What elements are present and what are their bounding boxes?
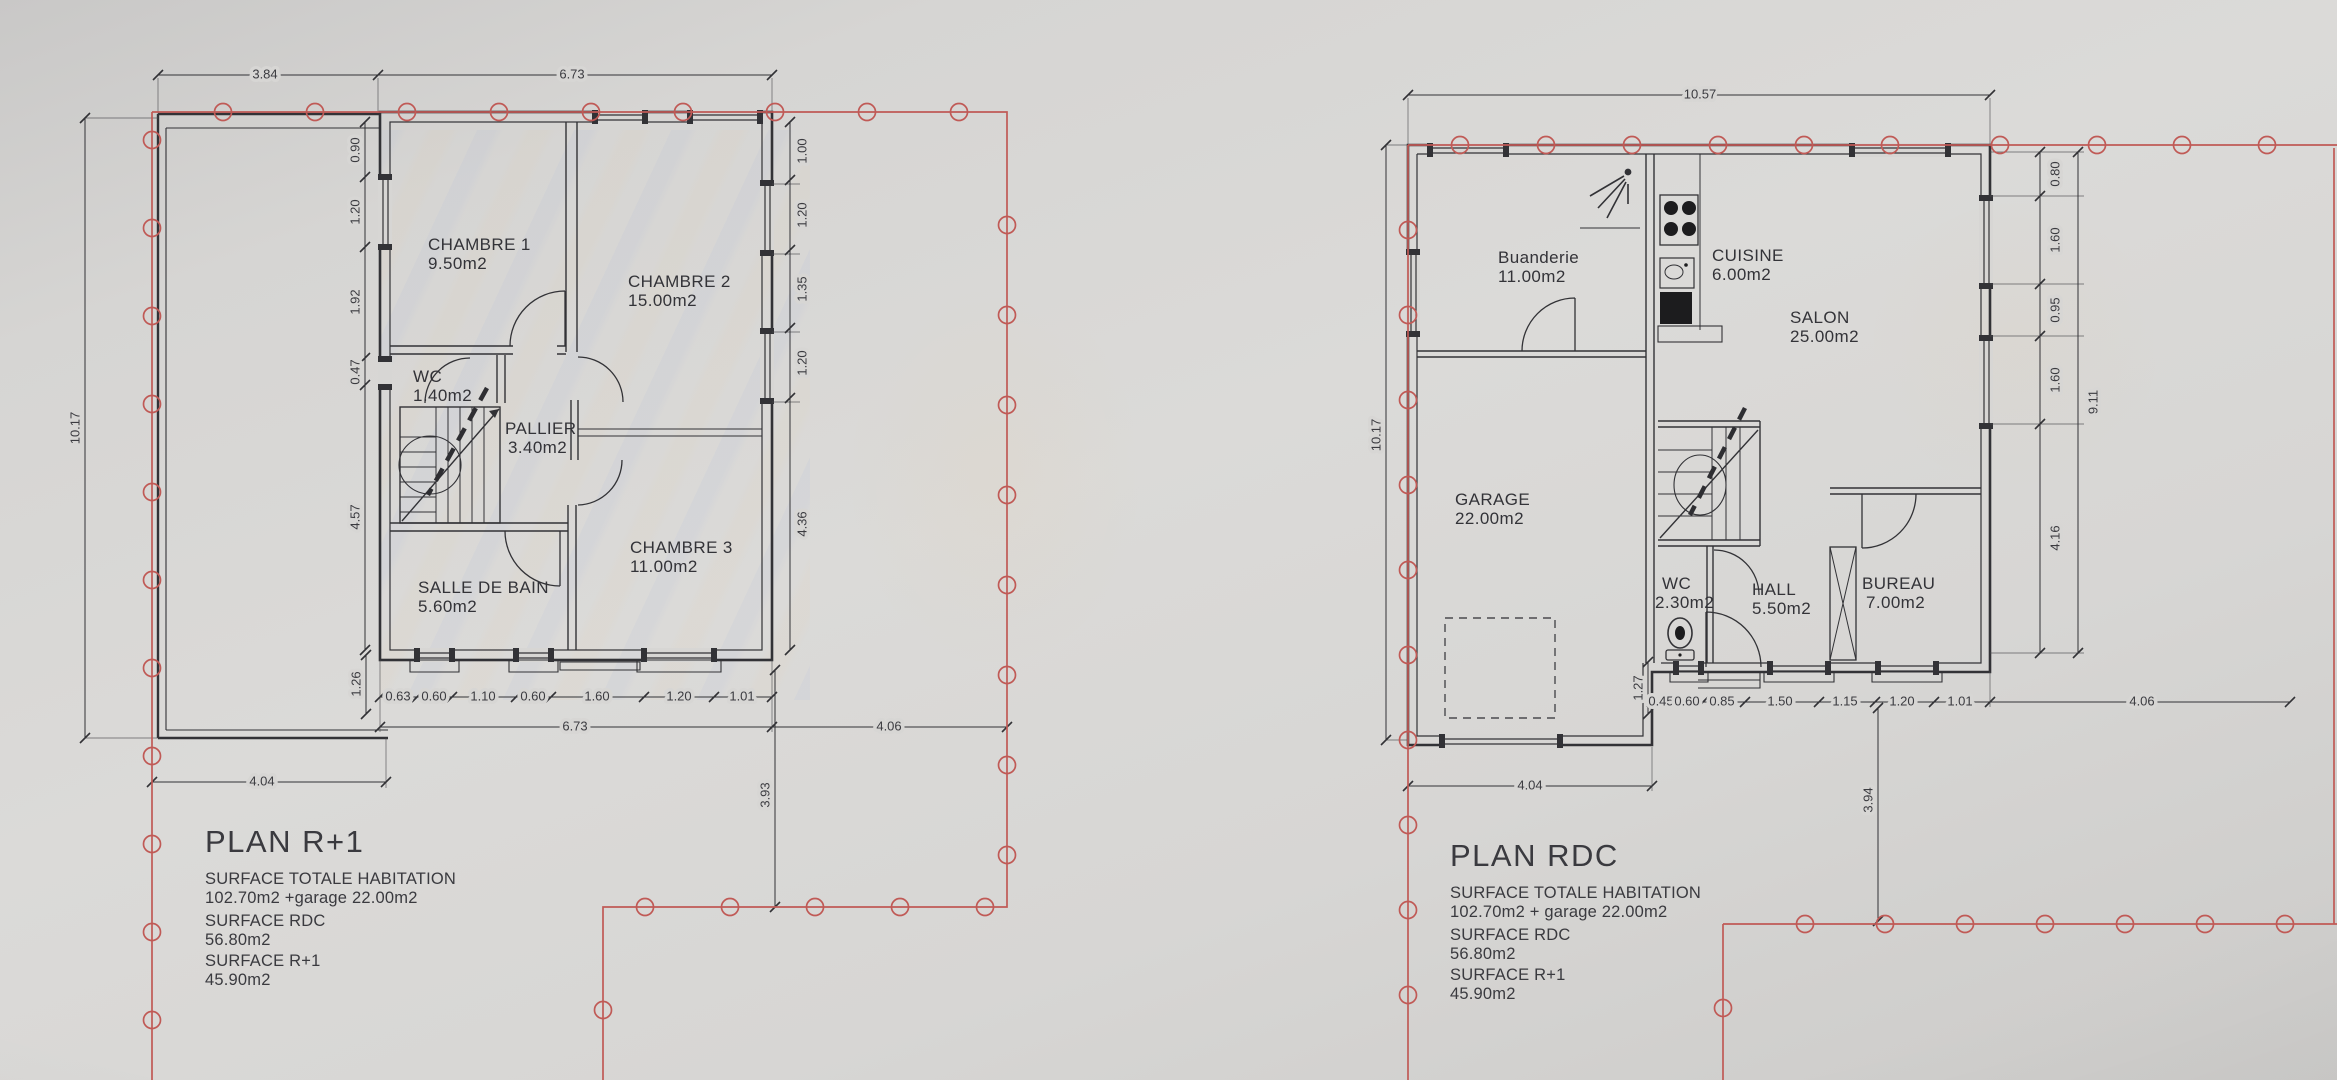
summary-line: SURFACE RDC [205, 912, 325, 930]
counter [1658, 326, 1722, 342]
dim-label: 0.45 [1648, 693, 1673, 708]
dim-label: 4.06 [876, 718, 901, 733]
room-area: 5.60m2 [418, 597, 477, 616]
dim-label: 10.17 [67, 412, 82, 445]
dim-label: 10.57 [1684, 86, 1717, 101]
dim-label: 1.60 [2047, 367, 2062, 392]
dimensions: 3.84 6.73 10.17 0.90 1.20 1.92 0.47 4.57… [67, 66, 1012, 912]
summary-line: 102.70m2 + garage 22.00m2 [1450, 903, 1667, 921]
dim-label: 1.92 [347, 289, 362, 314]
dim-label: 6.73 [559, 66, 584, 81]
dim-label: 1.20 [794, 202, 809, 227]
dim-label: 3.93 [757, 782, 772, 807]
room-area: 22.00m2 [1455, 509, 1524, 528]
dim-label: 0.95 [2047, 297, 2062, 322]
room-area: 11.00m2 [630, 557, 698, 576]
summary-line: 102.70m2 +garage 22.00m2 [205, 889, 418, 907]
summary-line: 45.90m2 [1450, 985, 1516, 1003]
room-label: WC [413, 367, 442, 386]
room-label: WC [1662, 574, 1691, 593]
dim-label: 1.01 [1947, 693, 1972, 708]
dim-label: 1.35 [794, 276, 809, 301]
plan-rdc: Buanderie 11.00m2 CUISINE 6.00m2 SALON 2… [1368, 86, 2337, 1080]
plan-r1: CHAMBRE 1 9.50m2 CHAMBRE 2 15.00m2 WC 1.… [67, 66, 1015, 1080]
summary-line: 45.90m2 [205, 971, 271, 989]
summary-line: 56.80m2 [205, 931, 271, 949]
dim-label: 1.20 [1889, 693, 1914, 708]
room-label: HALL [1752, 580, 1796, 599]
dim-label: 3.94 [1860, 787, 1875, 812]
room-area: 6.00m2 [1712, 265, 1771, 284]
dim-label: 1.26 [348, 671, 363, 696]
dim-label: 1.60 [584, 688, 609, 703]
dim-label: 1.50 [1767, 693, 1792, 708]
room-label: CHAMBRE 2 [628, 272, 731, 291]
sink-icon [1660, 258, 1694, 288]
summary-line: SURFACE TOTALE HABITATION [205, 870, 456, 888]
dim-label: 0.47 [347, 359, 362, 384]
room-area: 11.00m2 [1498, 267, 1566, 286]
room-area: 7.00m2 [1866, 593, 1925, 612]
room-area: 15.00m2 [628, 291, 697, 310]
staircase [399, 388, 500, 523]
dim-label: 4.04 [1517, 777, 1542, 792]
room-label: PALLIER [505, 419, 576, 438]
dim-label: 0.63 [385, 688, 410, 703]
dim-label: 1.01 [729, 688, 754, 703]
dim-label: 4.16 [2047, 525, 2062, 550]
room-label: SALLE DE BAIN [418, 578, 549, 597]
staircase [1658, 408, 1758, 540]
dim-label: 10.17 [1368, 419, 1383, 452]
dim-label: 1.00 [794, 138, 809, 163]
room-area: 5.50m2 [1752, 599, 1811, 618]
dim-label: 3.84 [252, 66, 277, 81]
dim-label: 9.11 [2085, 390, 2100, 414]
summary-line: 56.80m2 [1450, 945, 1516, 963]
dim-label: 4.57 [347, 504, 362, 529]
room-area: 2.30m2 [1655, 593, 1714, 612]
plan-title-block: PLAN RDC SURFACE TOTALE HABITATION 102.7… [1450, 838, 1701, 1003]
room-area: 9.50m2 [428, 254, 487, 273]
section-line [1690, 408, 1745, 515]
room-label: SALON [1790, 308, 1850, 327]
toilet-icon [1666, 618, 1694, 660]
summary-line: SURFACE TOTALE HABITATION [1450, 884, 1701, 902]
room-label: Buanderie [1498, 248, 1579, 267]
dim-label: 1.20 [347, 199, 362, 224]
oven-icon [1660, 292, 1692, 324]
porch-steps [1698, 672, 1760, 688]
dim-label: 1.60 [2047, 227, 2062, 252]
dim-label: 0.60 [1674, 693, 1699, 708]
dim-label: 0.85 [1709, 693, 1734, 708]
house-walls [1408, 145, 1990, 745]
room-label: CHAMBRE 1 [428, 235, 531, 254]
photographed-floor-plan-page: { "colors": { "drawing_line": "#323236",… [0, 0, 2337, 1080]
property-boundary [144, 104, 1016, 1080]
dim-label: 0.60 [520, 688, 545, 703]
dim-label: 0.60 [421, 688, 446, 703]
dim-label: 0.90 [347, 137, 362, 162]
floor-plan-drawing: CHAMBRE 1 9.50m2 CHAMBRE 2 15.00m2 WC 1.… [0, 0, 2337, 1080]
plan-title: PLAN RDC [1450, 838, 1619, 873]
dim-label: 1.20 [794, 350, 809, 375]
dim-label: 1.27 [1630, 675, 1645, 700]
room-area: 25.00m2 [1790, 327, 1859, 346]
dim-label: 1.10 [470, 688, 495, 703]
room-area: 3.40m2 [508, 438, 567, 457]
summary-line: SURFACE RDC [1450, 926, 1570, 944]
sun-ray-icon [1580, 169, 1640, 228]
plan-title: PLAN R+1 [205, 824, 364, 859]
dim-label: 4.04 [249, 773, 274, 788]
room-area: 1.40m2 [413, 386, 472, 405]
room-label: CHAMBRE 3 [630, 538, 733, 557]
cupboard [1830, 547, 1856, 660]
dim-label: 1.15 [1832, 693, 1857, 708]
room-labels: Buanderie 11.00m2 CUISINE 6.00m2 SALON 2… [1455, 246, 1935, 618]
room-label: CUISINE [1712, 246, 1784, 265]
room-labels: CHAMBRE 1 9.50m2 CHAMBRE 2 15.00m2 WC 1.… [413, 235, 733, 616]
summary-line: SURFACE R+1 [1450, 966, 1565, 984]
dim-label: 4.06 [2129, 693, 2154, 708]
plan-title-block: PLAN R+1 SURFACE TOTALE HABITATION 102.7… [205, 824, 456, 989]
dim-label: 1.20 [666, 688, 691, 703]
room-label: GARAGE [1455, 490, 1530, 509]
summary-line: SURFACE R+1 [205, 952, 320, 970]
dim-label: 4.36 [794, 511, 809, 536]
doors [1522, 298, 1916, 667]
dim-label: 6.73 [562, 718, 587, 733]
dim-label: 0.80 [2047, 161, 2062, 186]
room-label: BUREAU [1862, 574, 1935, 593]
